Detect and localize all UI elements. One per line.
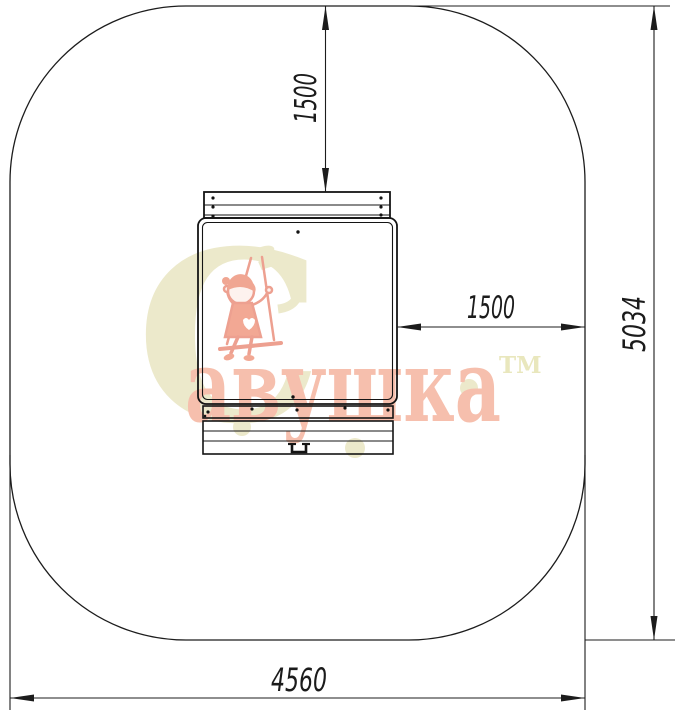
watermark-tm: ТМ (499, 352, 542, 379)
drawing-canvas: С авушка ТМ (0, 0, 675, 710)
arrowhead-right (561, 695, 585, 702)
arrowhead-down (651, 616, 658, 640)
arrowhead-up (322, 6, 329, 30)
arrowhead-right (561, 324, 585, 331)
dimension-value: 1500 (467, 290, 515, 326)
girl-hand (266, 287, 272, 293)
arrowhead-up (651, 6, 658, 30)
dimension-value: 4560 (271, 661, 327, 699)
bolt-dot (379, 205, 382, 208)
bolt-dot (379, 213, 382, 216)
watermark-brand-text: авушка (185, 327, 501, 445)
bolt-dot (211, 214, 214, 217)
brand-watermark: С авушка ТМ (136, 200, 542, 476)
bolt-dot (211, 196, 214, 199)
arrowhead-down (322, 168, 329, 192)
dimension-zone-depth: 5034 (617, 6, 658, 640)
bolt-dot (206, 410, 209, 413)
bolt-dot (295, 408, 298, 411)
arrowhead-left (10, 695, 34, 702)
bolt-dot (379, 196, 382, 199)
dimension-value: 5034 (617, 296, 653, 352)
dimension-zone-width: 4560 (10, 661, 585, 702)
girl-pigtail (222, 277, 230, 285)
bolt-dot (386, 408, 389, 411)
plan-drawing: С авушка ТМ (0, 0, 675, 710)
bolt-dot (250, 407, 253, 410)
dimension-value: 1500 (289, 73, 324, 123)
bolt-dot (211, 205, 214, 208)
bolt-dot (291, 395, 294, 398)
bolt-dot (343, 406, 346, 409)
bolt-dot (204, 415, 207, 418)
dimension-top-clearance: 1500 (289, 6, 329, 192)
dimension-right-clearance: 1500 (397, 290, 585, 331)
bolt-dot (296, 230, 299, 233)
